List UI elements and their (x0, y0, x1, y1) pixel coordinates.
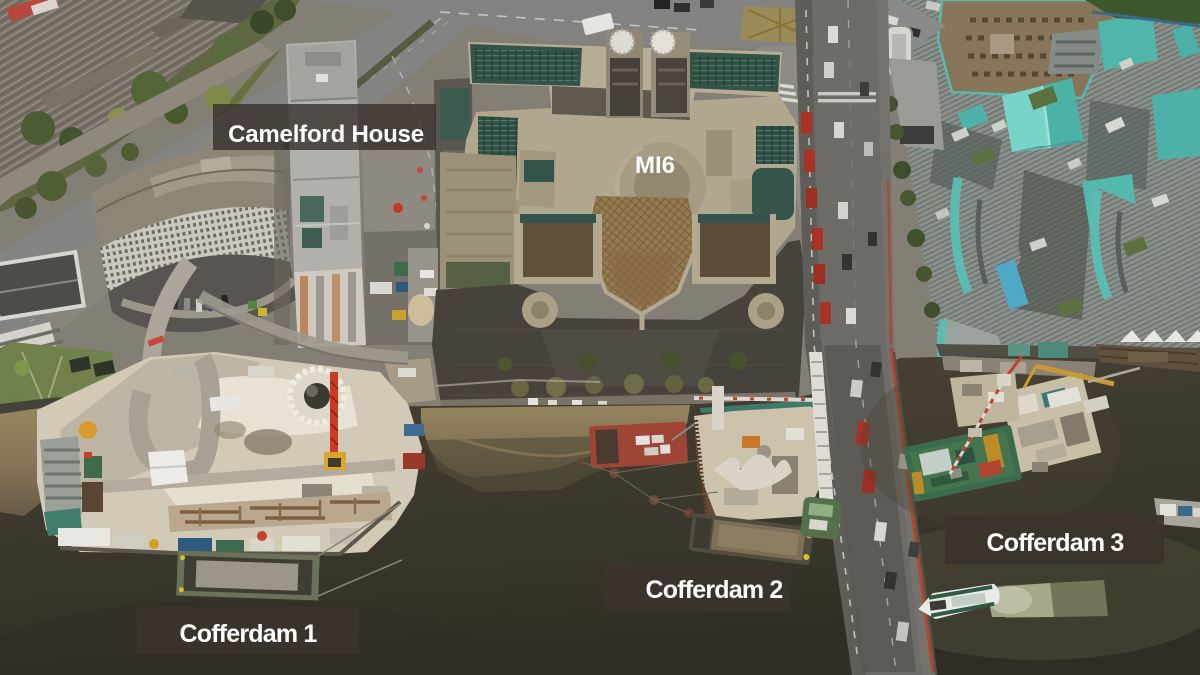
svg-text:Camelford House: Camelford House (228, 121, 424, 148)
svg-text:Cofferdam 3: Cofferdam 3 (986, 529, 1123, 557)
svg-text:Cofferdam 1: Cofferdam 1 (179, 620, 317, 648)
svg-text:Cofferdam 2: Cofferdam 2 (645, 576, 782, 604)
svg-text:MI6: MI6 (635, 152, 675, 179)
